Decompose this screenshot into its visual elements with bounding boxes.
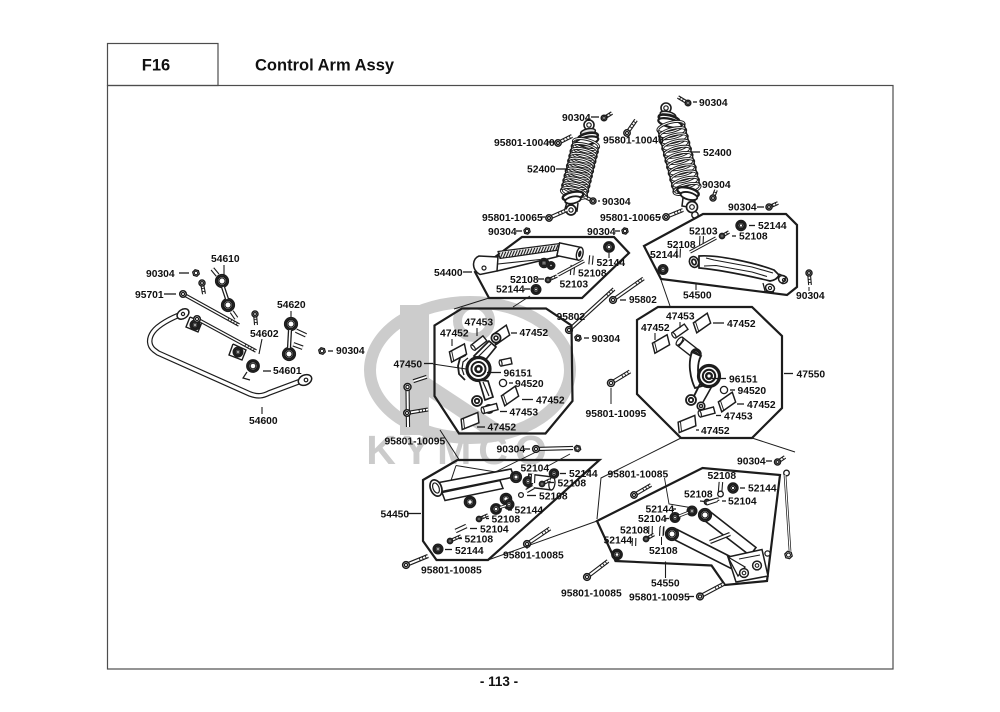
svg-text:54610: 54610 bbox=[211, 254, 240, 265]
svg-text:54500: 54500 bbox=[683, 291, 712, 302]
svg-text:47452: 47452 bbox=[440, 329, 469, 340]
svg-text:52144: 52144 bbox=[748, 484, 777, 495]
svg-text:95801-10085: 95801-10085 bbox=[608, 470, 669, 481]
svg-text:52144: 52144 bbox=[496, 285, 525, 296]
svg-text:47452: 47452 bbox=[727, 319, 756, 330]
svg-text:95801-10095: 95801-10095 bbox=[629, 593, 690, 604]
svg-text:95801-10065: 95801-10065 bbox=[482, 213, 543, 224]
svg-text:52103: 52103 bbox=[560, 280, 589, 291]
svg-text:47453: 47453 bbox=[666, 312, 695, 323]
svg-text:54602: 54602 bbox=[250, 329, 279, 340]
svg-text:52108: 52108 bbox=[578, 269, 607, 280]
svg-text:52103: 52103 bbox=[689, 227, 718, 238]
svg-text:Control Arm Assy: Control Arm Assy bbox=[255, 57, 395, 75]
svg-text:47452: 47452 bbox=[701, 426, 730, 437]
svg-text:52144: 52144 bbox=[758, 221, 787, 232]
svg-text:52400: 52400 bbox=[527, 165, 556, 176]
svg-text:52104: 52104 bbox=[638, 514, 667, 525]
svg-text:90304: 90304 bbox=[336, 346, 365, 357]
svg-text:47453: 47453 bbox=[724, 412, 753, 423]
svg-text:47452: 47452 bbox=[520, 328, 549, 339]
svg-text:54550: 54550 bbox=[651, 579, 680, 590]
svg-text:52108: 52108 bbox=[558, 479, 587, 490]
svg-text:90304: 90304 bbox=[592, 334, 621, 345]
svg-text:95801-10085: 95801-10085 bbox=[421, 566, 482, 577]
svg-text:95801-10095: 95801-10095 bbox=[586, 409, 647, 420]
svg-text:52108: 52108 bbox=[649, 546, 678, 557]
svg-text:47453: 47453 bbox=[510, 408, 539, 419]
svg-text:95801-10040: 95801-10040 bbox=[494, 138, 555, 149]
svg-text:54601: 54601 bbox=[273, 366, 302, 377]
svg-text:47452: 47452 bbox=[641, 323, 670, 334]
svg-text:47453: 47453 bbox=[465, 318, 494, 329]
svg-text:47550: 47550 bbox=[797, 370, 826, 381]
svg-text:52144: 52144 bbox=[597, 258, 626, 269]
svg-text:95801-10095: 95801-10095 bbox=[385, 437, 446, 448]
svg-text:90304: 90304 bbox=[699, 98, 728, 109]
svg-text:95802: 95802 bbox=[629, 295, 657, 306]
svg-text:47452: 47452 bbox=[488, 423, 517, 434]
svg-text:95701: 95701 bbox=[135, 290, 164, 301]
svg-text:90304: 90304 bbox=[488, 227, 517, 238]
svg-text:90304: 90304 bbox=[728, 203, 757, 214]
svg-text:52104: 52104 bbox=[728, 497, 757, 508]
svg-text:54600: 54600 bbox=[249, 416, 278, 427]
svg-text:47450: 47450 bbox=[394, 360, 423, 371]
svg-text:52144: 52144 bbox=[455, 546, 484, 557]
svg-text:54400: 54400 bbox=[434, 268, 463, 279]
svg-text:54450: 54450 bbox=[381, 510, 410, 521]
svg-text:90304: 90304 bbox=[562, 113, 591, 124]
svg-text:90304: 90304 bbox=[737, 457, 766, 468]
svg-text:F16: F16 bbox=[142, 57, 170, 75]
svg-text:94520: 94520 bbox=[515, 379, 544, 390]
svg-text:95801-10085: 95801-10085 bbox=[561, 589, 622, 600]
svg-text:52108: 52108 bbox=[708, 471, 737, 482]
svg-text:90304: 90304 bbox=[702, 180, 731, 191]
svg-text:52400: 52400 bbox=[703, 148, 732, 159]
svg-text:52108: 52108 bbox=[684, 490, 713, 501]
svg-text:47452: 47452 bbox=[747, 400, 776, 411]
svg-text:90304: 90304 bbox=[497, 445, 526, 456]
svg-text:95801-10040: 95801-10040 bbox=[603, 136, 664, 147]
svg-text:95801-10085: 95801-10085 bbox=[503, 551, 564, 562]
svg-text:94520: 94520 bbox=[738, 386, 767, 397]
svg-text:96151: 96151 bbox=[504, 369, 533, 380]
svg-text:90304: 90304 bbox=[146, 269, 175, 280]
svg-text:96151: 96151 bbox=[729, 375, 758, 386]
svg-text:- 113 -: - 113 - bbox=[480, 674, 518, 689]
svg-text:52108: 52108 bbox=[739, 232, 768, 243]
svg-text:52144: 52144 bbox=[650, 250, 679, 261]
svg-text:47452: 47452 bbox=[536, 396, 565, 407]
svg-text:52104: 52104 bbox=[521, 464, 550, 475]
svg-text:54620: 54620 bbox=[277, 300, 306, 311]
svg-text:52108: 52108 bbox=[465, 535, 494, 546]
svg-text:90304: 90304 bbox=[796, 291, 825, 302]
svg-text:52108: 52108 bbox=[539, 492, 568, 503]
svg-text:52144: 52144 bbox=[604, 536, 633, 547]
svg-text:90304: 90304 bbox=[587, 227, 616, 238]
svg-text:90304: 90304 bbox=[602, 197, 631, 208]
svg-text:95801-10065: 95801-10065 bbox=[600, 213, 661, 224]
